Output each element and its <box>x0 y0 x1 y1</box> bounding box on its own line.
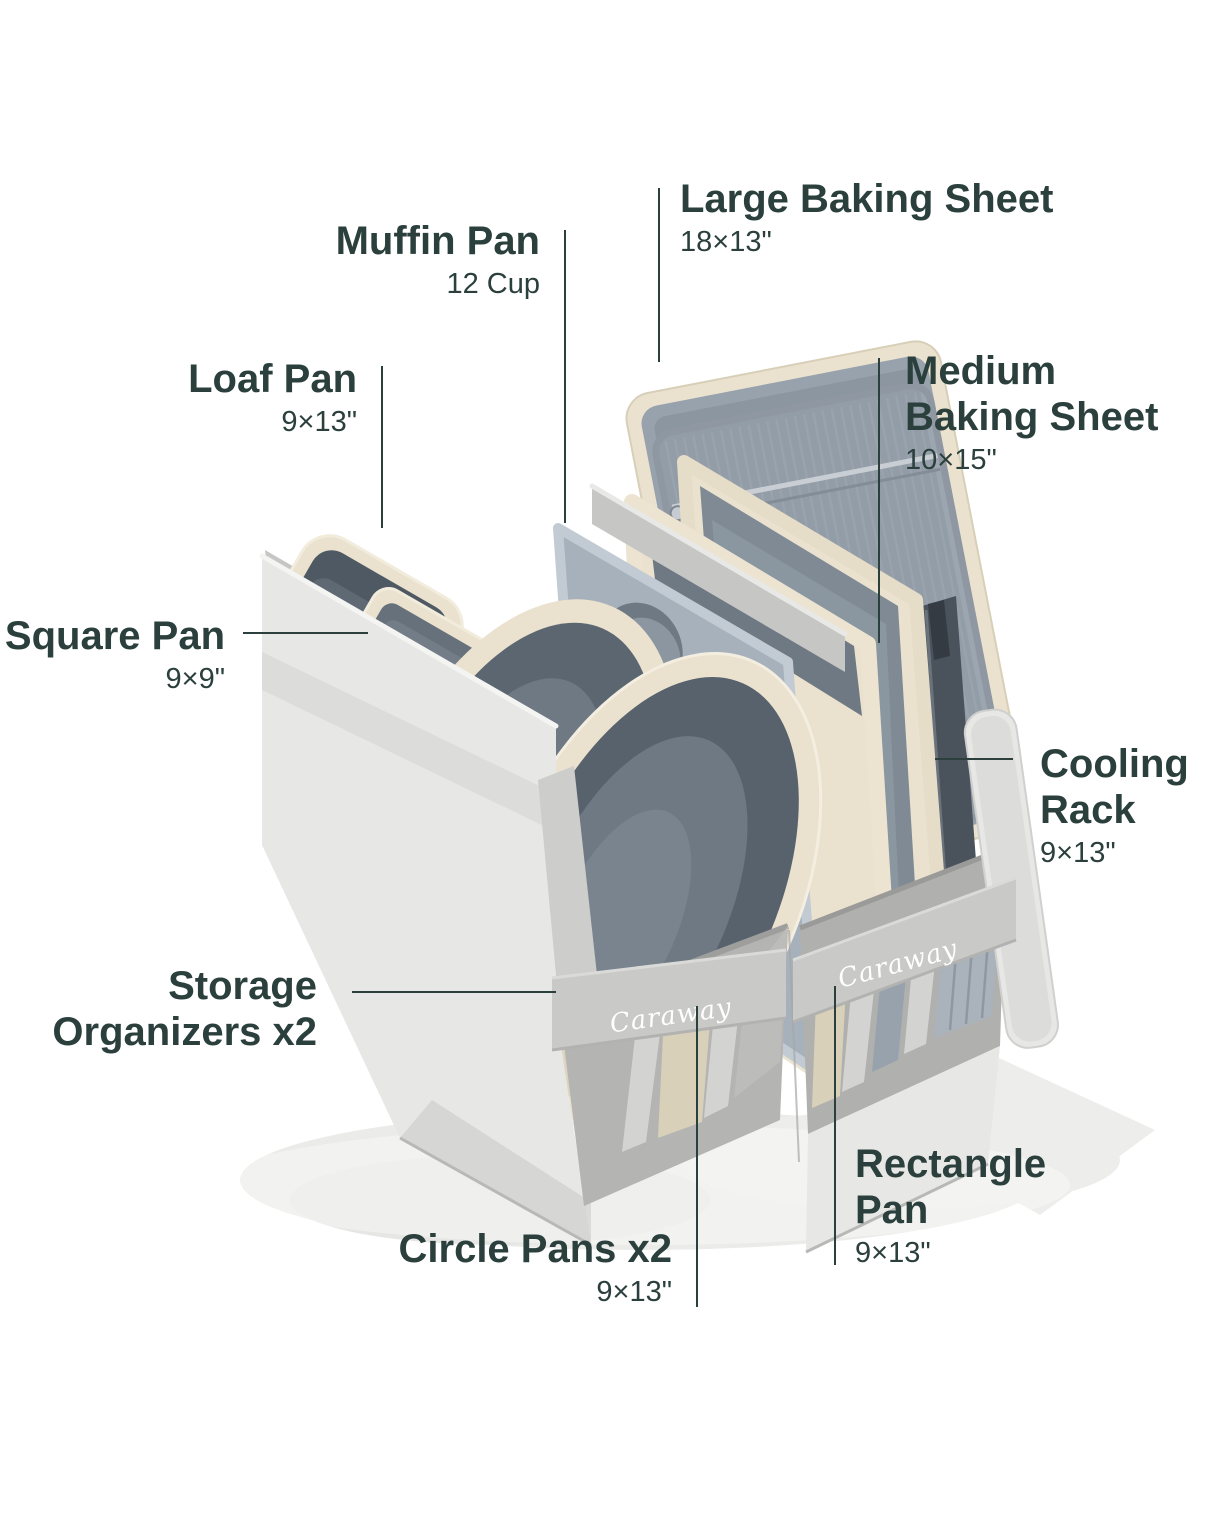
label-title: Cooling <box>1040 741 1189 787</box>
label-title: Organizers x2 <box>52 1009 317 1055</box>
label-title: Medium <box>905 348 1158 394</box>
callout-line-medium-baking-sheet <box>878 358 880 643</box>
label-dimension: 10×15" <box>905 442 1158 478</box>
label-loaf-pan: Loaf Pan 9×13" <box>188 356 357 440</box>
label-large-baking-sheet: Large Baking Sheet 18×13" <box>680 176 1053 260</box>
callout-line-storage-organizers <box>352 991 556 993</box>
label-dimension: 9×9" <box>5 661 225 697</box>
label-title: Muffin Pan <box>336 218 540 264</box>
label-dimension: 18×13" <box>680 224 1053 260</box>
label-circle-pans: Circle Pans x2 9×13" <box>399 1226 673 1310</box>
label-title: Pan <box>855 1187 1046 1233</box>
label-dimension: 12 Cup <box>336 266 540 302</box>
label-dimension: 9×13" <box>188 404 357 440</box>
label-cooling-rack: Cooling Rack 9×13" <box>1040 741 1189 871</box>
label-title: Rack <box>1040 787 1189 833</box>
label-dimension: 9×13" <box>399 1274 673 1310</box>
callout-line-cooling-rack <box>935 758 1013 760</box>
label-storage-organizers: Storage Organizers x2 <box>52 963 317 1055</box>
label-muffin-pan: Muffin Pan 12 Cup <box>336 218 540 302</box>
label-dimension: 9×13" <box>1040 835 1189 871</box>
label-title: Rectangle <box>855 1141 1046 1187</box>
label-rectangle-pan: Rectangle Pan 9×13" <box>855 1141 1046 1271</box>
callout-line-rectangle-pan <box>834 986 836 1265</box>
product-infographic: Caraway Caraway <box>0 0 1214 1518</box>
callout-line-square-pan <box>243 632 368 634</box>
label-title: Square Pan <box>5 613 225 659</box>
callout-line-muffin-pan <box>564 230 566 523</box>
callout-line-circle-pans <box>696 1006 698 1307</box>
callout-line-loaf-pan <box>381 366 383 528</box>
label-title: Large Baking Sheet <box>680 176 1053 222</box>
label-title: Baking Sheet <box>905 394 1158 440</box>
label-title: Loaf Pan <box>188 356 357 402</box>
label-dimension: 9×13" <box>855 1235 1046 1271</box>
label-square-pan: Square Pan 9×9" <box>5 613 225 697</box>
callout-line-large-baking-sheet <box>658 188 660 362</box>
label-title: Circle Pans x2 <box>399 1226 673 1272</box>
label-medium-baking-sheet: Medium Baking Sheet 10×15" <box>905 348 1158 478</box>
label-title: Storage <box>52 963 317 1009</box>
